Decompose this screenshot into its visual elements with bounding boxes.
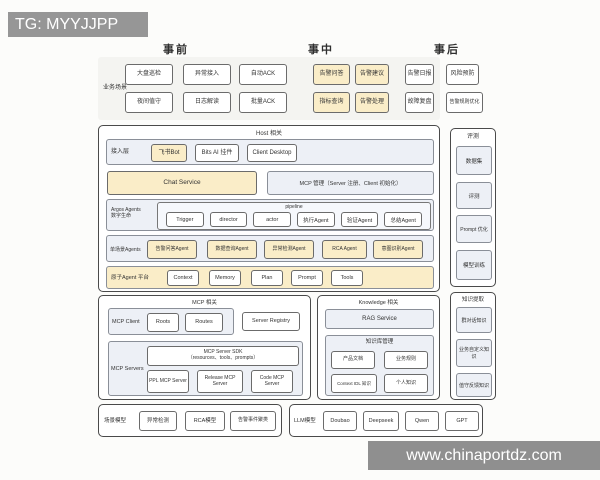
- feishu-bot-box: 飞书Bot: [151, 144, 187, 162]
- pipeline-row: Argos Agents 数字生命 pipeline Trigger direc…: [106, 199, 434, 231]
- business-box: 风险预防: [446, 64, 479, 85]
- business-box: 告警建议: [355, 64, 389, 85]
- pipeline-steps: Trigger director actor 执行Agent 验证Agent 总…: [166, 212, 422, 227]
- code-mcp-server-box: Code MCP Server: [251, 370, 293, 393]
- agent-box: 意图识别Agent: [373, 240, 423, 259]
- scene-model-box: 异常检测: [139, 411, 177, 431]
- evaluation-title: 评测: [451, 131, 495, 140]
- business-box: 故障复盘: [405, 92, 434, 113]
- business-box: 指标查询: [313, 92, 350, 113]
- pipeline-step: 总结Agent: [384, 212, 422, 227]
- agent-box: 异常检测Agent: [264, 240, 314, 259]
- mcp-server-sdk-box: MCP Server SDK （resources、tools、prompts）: [147, 346, 299, 366]
- kb-box: 个人知识: [384, 374, 428, 393]
- architecture-diagram: TG: MYYJJPP www.chinaportdz.com 事前 事中 事后…: [0, 0, 600, 480]
- business-box: 日志解读: [183, 92, 231, 113]
- scene-agents-label: 单场景Agents: [110, 247, 141, 253]
- pipeline-title: pipeline: [158, 204, 430, 210]
- business-box: 告警规则优化: [446, 92, 483, 113]
- phase-header-post: 事后: [434, 41, 460, 57]
- business-box: 告警处理: [355, 92, 389, 113]
- model-training-box: 模型训练: [456, 250, 492, 280]
- business-box: 告警问答: [313, 64, 350, 85]
- scene-models-section: 场景模型 异常检测 RCA模型 告警事件聚类: [98, 404, 282, 437]
- routes-box: Routes: [185, 313, 223, 332]
- extraction-section: 知识提取 群对话知识 业务自定义知识 值守反馈知识: [450, 292, 496, 400]
- kb-box: 产品文档: [331, 351, 375, 369]
- kb-management-label: 知识库管理: [326, 339, 433, 346]
- scene-models-label: 场景模型: [104, 418, 126, 425]
- atomic-box: Context: [167, 270, 199, 286]
- pipeline-step: Trigger: [166, 212, 204, 227]
- pipeline-step: director: [210, 212, 248, 227]
- scene-model-box: 告警事件聚类: [230, 411, 276, 431]
- business-scenarios-panel: 业务场景 大盘巡检 异常接入 自动ACK 告警问答 告警建议 告警日报 风险预防…: [98, 57, 440, 120]
- business-box: 批量ACK: [239, 92, 287, 113]
- phase-header-pre: 事前: [163, 41, 189, 57]
- host-section: Host 相关 接入层 飞书Bot Bits AI 挂件 Client Desk…: [98, 125, 440, 292]
- atomic-box: Prompt: [291, 270, 323, 286]
- evaluation-section: 评测 数据集 评测 Prompt 优化 模型训练: [450, 128, 496, 287]
- llm-box: Deepseek: [363, 411, 399, 431]
- agent-box: RCA Agent: [322, 240, 367, 259]
- atomic-platform-label: 原子Agent 平台: [111, 275, 149, 282]
- llm-models-label: LLM模型: [294, 418, 316, 425]
- mcp-servers-panel: MCP Servers MCP Server SDK （resources、to…: [108, 341, 303, 396]
- argos-agents-label-line2: 数字生命: [111, 213, 141, 219]
- kb-box: Context IDL 知识: [331, 374, 377, 393]
- extraction-title: 知识提取: [451, 295, 495, 303]
- watermark-top-left: TG: MYYJJPP: [8, 12, 148, 37]
- pipeline-box: pipeline Trigger director actor 执行Agent …: [157, 202, 431, 230]
- business-box: 告警日报: [405, 64, 434, 85]
- dataset-box: 数据集: [456, 146, 492, 175]
- pipeline-step: 执行Agent: [297, 212, 335, 227]
- chat-service-box: Chat Service: [107, 171, 257, 195]
- mcp-server-sdk-line2: （resources、tools、prompts）: [188, 356, 259, 362]
- host-section-title: Host 相关: [99, 128, 439, 137]
- pipeline-step: actor: [253, 212, 291, 227]
- knowledge-section: Knowledge 相关 RAG Service 知识库管理 产品文档 业务规则…: [317, 295, 440, 400]
- custom-knowledge-box: 业务自定义知识: [456, 339, 492, 367]
- duty-feedback-knowledge-box: 值守反馈知识: [456, 373, 492, 397]
- watermark-bottom-right: www.chinaportdz.com: [368, 441, 600, 470]
- roots-box: Roots: [147, 313, 179, 332]
- prompt-optimize-box: Prompt 优化: [456, 215, 492, 243]
- business-box: 大盘巡检: [125, 64, 173, 85]
- release-mcp-server-box: Release MCP Server: [197, 370, 243, 393]
- mcp-section: MCP 相关 MCP Client Roots Routes Server Re…: [98, 295, 311, 400]
- mcp-client-label: MCP Client: [112, 319, 140, 326]
- mcp-manage-box: MCP 管理（Server 注册、Client 初始化）: [267, 171, 434, 195]
- mcp-servers-label: MCP Servers: [111, 366, 144, 373]
- scene-model-box: RCA模型: [185, 411, 225, 431]
- kb-management-panel: 知识库管理 产品文档 业务规则 Context IDL 知识 个人知识: [325, 335, 434, 396]
- business-box: 自动ACK: [239, 64, 287, 85]
- llm-box: GPT: [445, 411, 479, 431]
- llm-box: Qwen: [405, 411, 439, 431]
- agent-box: 数据查询Agent: [207, 240, 257, 259]
- llm-box: Doubao: [323, 411, 357, 431]
- atomic-platform-row: 原子Agent 平台 Context Memory Plan Prompt To…: [106, 266, 434, 289]
- phase-header-mid: 事中: [308, 41, 334, 57]
- business-box: 夜间值守: [125, 92, 173, 113]
- kb-box: 业务规则: [384, 351, 428, 369]
- mcp-client-row: MCP Client Roots Routes: [108, 308, 234, 335]
- atomic-box: Plan: [251, 270, 283, 286]
- knowledge-section-title: Knowledge 相关: [318, 298, 439, 306]
- atomic-box: Memory: [209, 270, 241, 286]
- pipeline-step: 验证Agent: [341, 212, 379, 227]
- bits-ai-widget-box: Bits AI 挂件: [195, 144, 239, 162]
- argos-agents-label: Argos Agents 数字生命: [111, 207, 141, 220]
- llm-models-section: LLM模型 Doubao Deepseek Qwen GPT: [289, 404, 483, 437]
- business-box: 异常接入: [183, 64, 231, 85]
- group-chat-knowledge-box: 群对话知识: [456, 307, 492, 333]
- business-scenarios-label: 业务场景: [103, 85, 127, 93]
- access-layer-label: 接入层: [111, 149, 129, 157]
- scene-agents-row: 单场景Agents 告警问答Agent 数据查询Agent 异常检测Agent …: [106, 235, 434, 262]
- server-registry-box: Server Registry: [242, 312, 300, 331]
- access-layer-row: 接入层 飞书Bot Bits AI 挂件 Client Desktop: [106, 139, 434, 165]
- ppl-mcp-server-box: PPL MCP Server: [147, 370, 189, 393]
- rag-service-box: RAG Service: [325, 309, 434, 329]
- eval-box: 评测: [456, 182, 492, 209]
- atomic-box: Tools: [331, 270, 363, 286]
- client-desktop-box: Client Desktop: [247, 144, 297, 162]
- mcp-section-title: MCP 相关: [99, 298, 310, 306]
- agent-box: 告警问答Agent: [147, 240, 197, 259]
